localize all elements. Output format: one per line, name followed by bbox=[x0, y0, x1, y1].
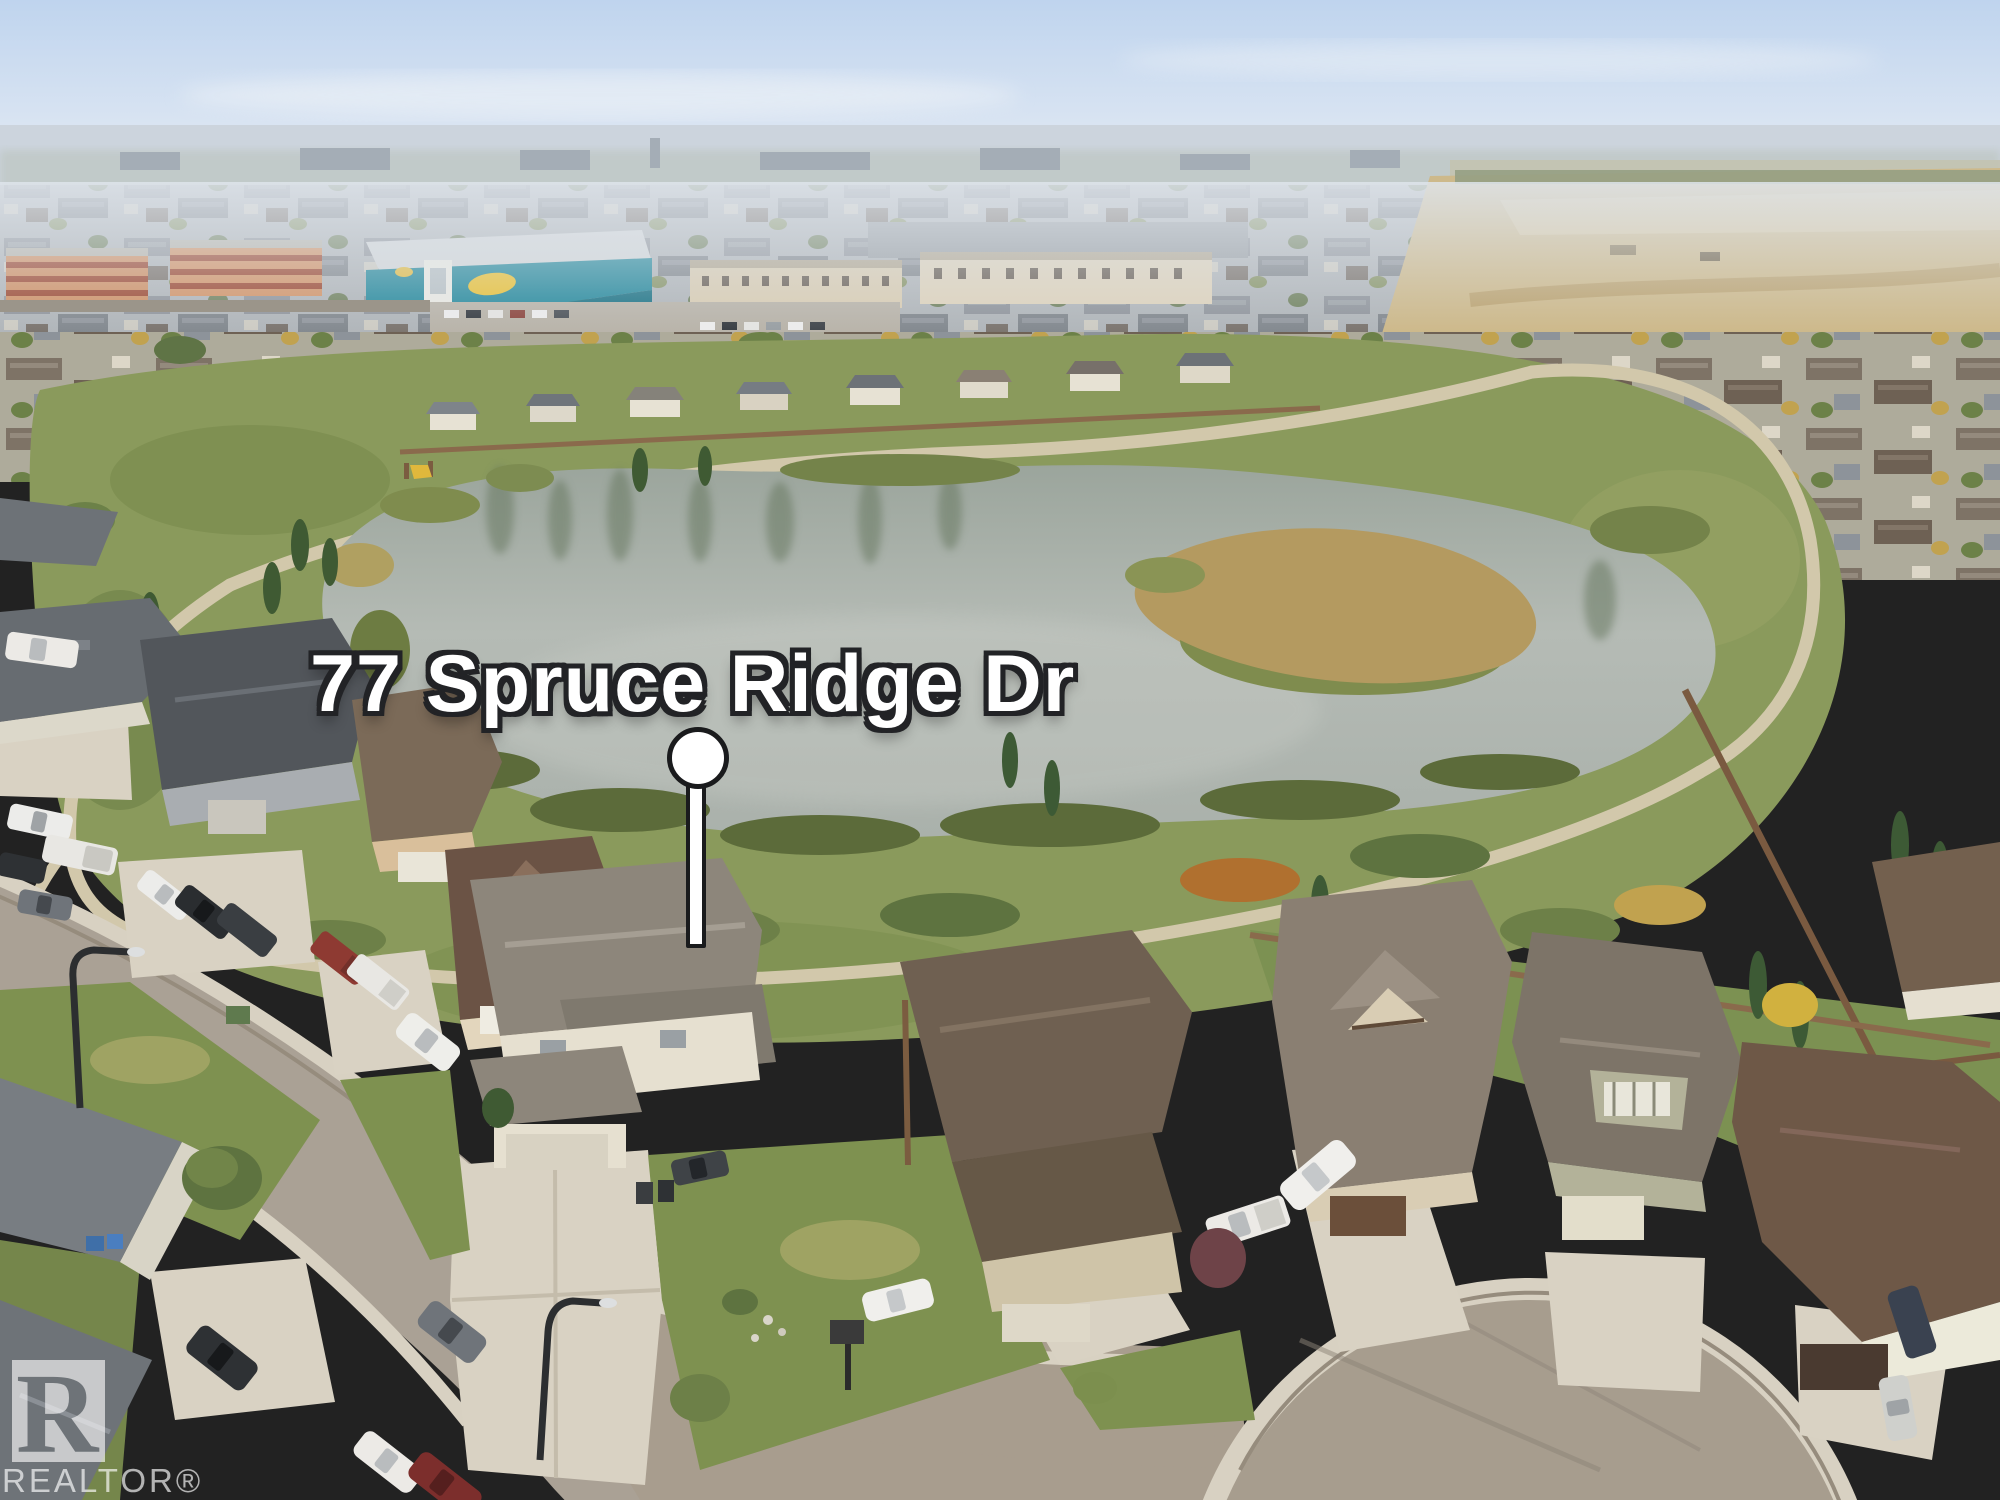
trash-bin bbox=[658, 1180, 674, 1202]
house-sage-green bbox=[1512, 932, 1742, 1240]
ornamental-red-tree bbox=[1190, 1228, 1246, 1288]
realtor-brand-text: REALTOR® bbox=[2, 1462, 203, 1499]
house-far-right bbox=[1732, 1042, 2000, 1390]
scene-canvas: R bbox=[0, 0, 2000, 1500]
house-right-edge-partial bbox=[1872, 842, 2000, 1020]
recycle-bin bbox=[107, 1234, 123, 1249]
aerial-photo: R bbox=[0, 0, 2000, 1500]
park-shrub bbox=[486, 464, 554, 492]
trash-bin bbox=[636, 1182, 653, 1204]
realtor-logo-block bbox=[12, 1360, 105, 1462]
map-pin-stem bbox=[686, 778, 706, 948]
cul-de-sac bbox=[1178, 1278, 1882, 1500]
autumn-tree bbox=[1762, 983, 1818, 1027]
utility-box bbox=[226, 1006, 250, 1024]
side-fence bbox=[905, 1000, 908, 1165]
map-pin-icon bbox=[667, 727, 729, 789]
playground bbox=[398, 461, 442, 487]
address-overlay-label: 77 Spruce Ridge Dr bbox=[310, 638, 1075, 731]
recycle-bin bbox=[86, 1236, 104, 1251]
